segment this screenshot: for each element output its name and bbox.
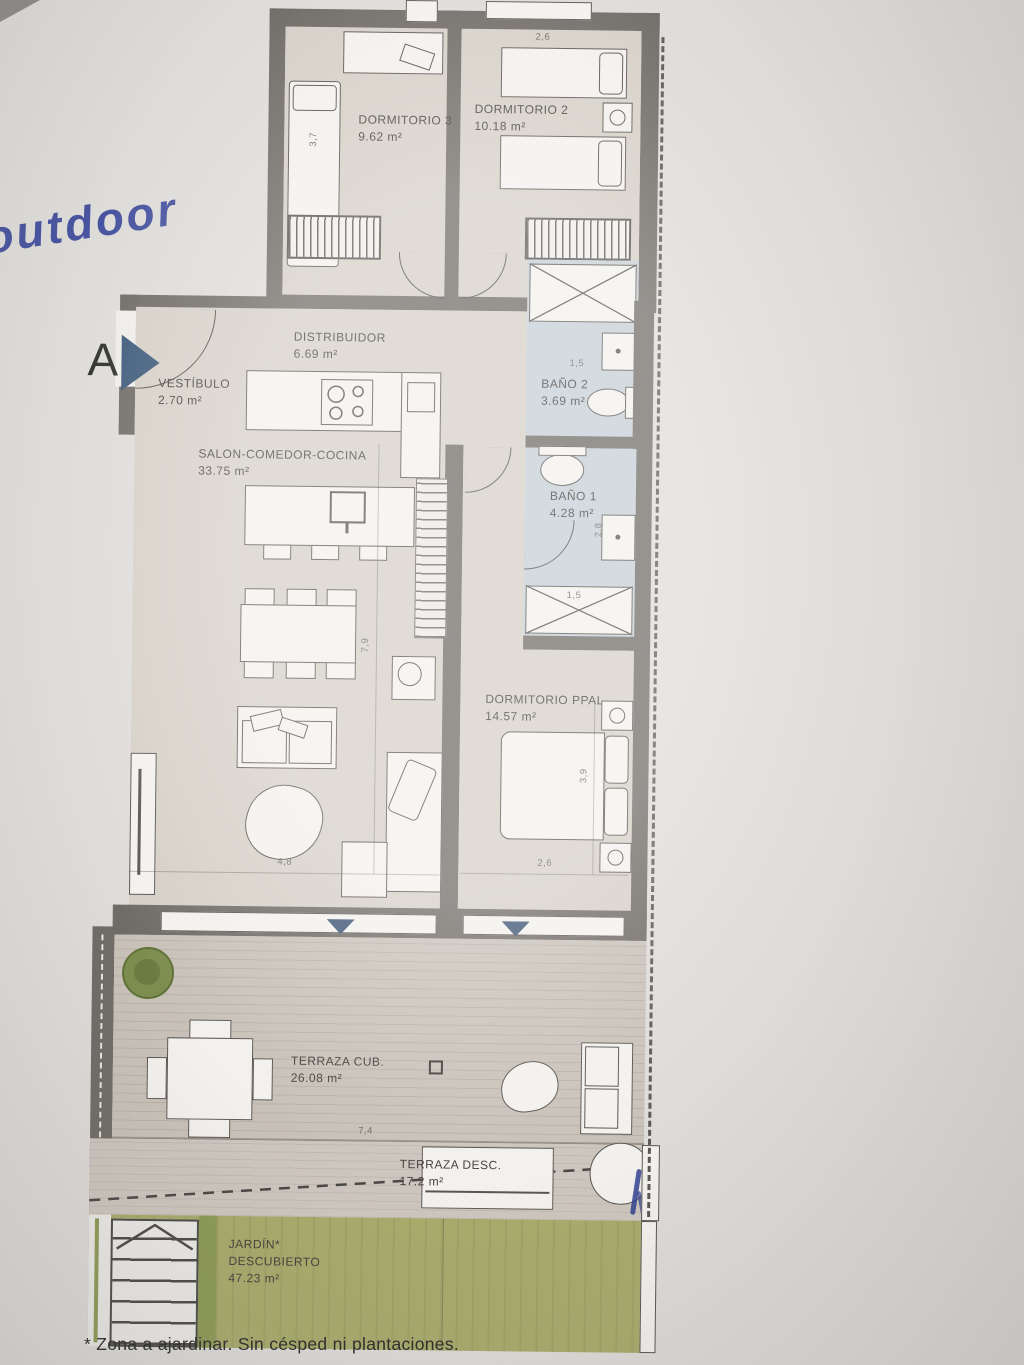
dimension: 1,5 (567, 590, 582, 601)
dimension: 2,8 (593, 522, 604, 537)
room-name: TERRAZA DESC. (400, 1156, 502, 1174)
ottoman (341, 841, 388, 898)
dining-table (240, 604, 357, 663)
lamp-icon (609, 708, 625, 724)
wardrobe (287, 215, 382, 260)
window (161, 911, 437, 934)
pillar (639, 1221, 657, 1353)
room-label-ppal: DORMITORIO PPAL 14.57 m² (485, 691, 604, 726)
pillow (599, 52, 624, 94)
footnote: * Zona a ajardinar. Sin césped ni planta… (84, 1334, 459, 1355)
sink-drain-icon (615, 535, 620, 540)
cooktop-burners-icon (321, 379, 374, 426)
room-name: DORMITORIO 2 (475, 101, 569, 119)
lamp-icon (609, 110, 625, 126)
bed (500, 731, 605, 840)
room-name: BAÑO 1 (550, 488, 597, 505)
wall (638, 13, 660, 311)
room-label-terraza-desc: TERRAZA DESC. 17.2 m² (399, 1156, 501, 1191)
dimension: 7,4 (358, 1126, 373, 1137)
room-area: 3.69 m² (541, 393, 588, 410)
sofa-cushion (584, 1088, 618, 1128)
pillow (604, 736, 629, 784)
wall (523, 636, 650, 652)
chair (244, 660, 274, 678)
room-area: 10.18 m² (474, 118, 568, 136)
outdoor-table (166, 1037, 253, 1120)
section-arrow-icon (121, 335, 160, 391)
room-name: DORMITORIO 3 (358, 111, 452, 129)
window-marker-icon (327, 919, 355, 934)
sink-drain-icon (616, 349, 621, 354)
chair (146, 1057, 167, 1099)
island-sink (330, 491, 366, 523)
room-area: 2.70 m² (158, 392, 230, 410)
faucet-icon (345, 521, 348, 533)
room-area: 33.75 m² (198, 462, 366, 481)
room-label-bano2: BAÑO 2 3.69 m² (541, 376, 588, 410)
room-name: TERRAZA CUB. (291, 1053, 385, 1071)
room-area: 9.62 m² (358, 128, 452, 146)
room-label-dorm2: DORMITORIO 2 10.18 m² (474, 101, 568, 136)
pillow (598, 140, 623, 186)
washer-door-icon (398, 662, 422, 686)
room-label-jardin: JARDÍN* DESCUBIERTO 47.23 m² (228, 1236, 320, 1288)
stool (311, 545, 339, 560)
fridge-inner (407, 382, 435, 412)
room-area: 17.2 m² (399, 1173, 501, 1191)
room-area: 6.69 m² (294, 345, 386, 363)
window (406, 0, 438, 22)
chair (326, 661, 356, 679)
chair (188, 1117, 230, 1138)
room-area: 26.08 m² (291, 1069, 385, 1087)
tv-unit (129, 753, 157, 895)
room-label-terraza-cub: TERRAZA CUB. 26.08 m² (291, 1053, 385, 1088)
stool (263, 544, 291, 559)
stairs (414, 478, 448, 638)
room-area: 47.23 m² (228, 1270, 320, 1288)
room-label-bano1: BAÑO 1 4.28 m² (550, 488, 597, 522)
room-name: DORMITORIO PPAL (485, 691, 604, 709)
toilet-icon (587, 388, 629, 417)
boundary-dash-line (89, 1138, 658, 1221)
room-name-2: DESCUBIERTO (228, 1253, 320, 1271)
floorplan-photo: outdoor DORMITORIO 3 9.62 m² 3,7 (0, 0, 1024, 1365)
dimension: 1,5 (569, 358, 584, 369)
garden-strip (197, 1216, 217, 1348)
column-icon (429, 1060, 443, 1074)
pillow (293, 85, 337, 112)
dimension: 4,8 (277, 857, 292, 868)
room-name: DISTRIBUIDOR (294, 329, 386, 347)
room-label-salon: SALON-COMEDOR-COCINA 33.75 m² (198, 446, 366, 482)
dimension: 7,9 (360, 638, 371, 653)
chair (252, 1058, 273, 1100)
stairs-arrow-icon (111, 1221, 199, 1252)
window-marker-icon (502, 921, 530, 936)
room-name: BAÑO 2 (541, 376, 588, 393)
shower-x-icon (529, 264, 637, 323)
room-ppal-corridor (458, 445, 526, 936)
window (463, 915, 625, 937)
garden-edge (87, 1214, 111, 1346)
toilet-icon (540, 454, 584, 487)
dimension: 3,7 (308, 132, 319, 147)
dimension: 2,6 (537, 858, 552, 869)
sofa-cushion (585, 1046, 619, 1086)
pillow (604, 788, 629, 836)
section-marker: A (87, 332, 118, 386)
room-name: VESTÍBULO (158, 375, 230, 393)
floorplan: DORMITORIO 3 9.62 m² 3,7 DORMITORIO 2 10… (0, 0, 1024, 1365)
lamp-icon (607, 850, 623, 866)
room-label-distribuidor: DISTRIBUIDOR 6.69 m² (294, 329, 386, 364)
stool (359, 545, 387, 560)
room-label-dorm3: DORMITORIO 3 9.62 m² (358, 111, 452, 146)
dimension: 3,9 (578, 768, 589, 783)
room-label-vestibulo: VESTÍBULO 2.70 m² (158, 375, 230, 409)
room-name: SALON-COMEDOR-COCINA (198, 446, 366, 465)
toilet-tank (538, 446, 586, 457)
dimension: 2,6 (535, 32, 550, 43)
window (486, 1, 592, 20)
wardrobe (525, 217, 632, 260)
room-area: 14.57 m² (485, 708, 604, 726)
room-name: JARDÍN* (229, 1236, 321, 1254)
chair (286, 661, 316, 679)
